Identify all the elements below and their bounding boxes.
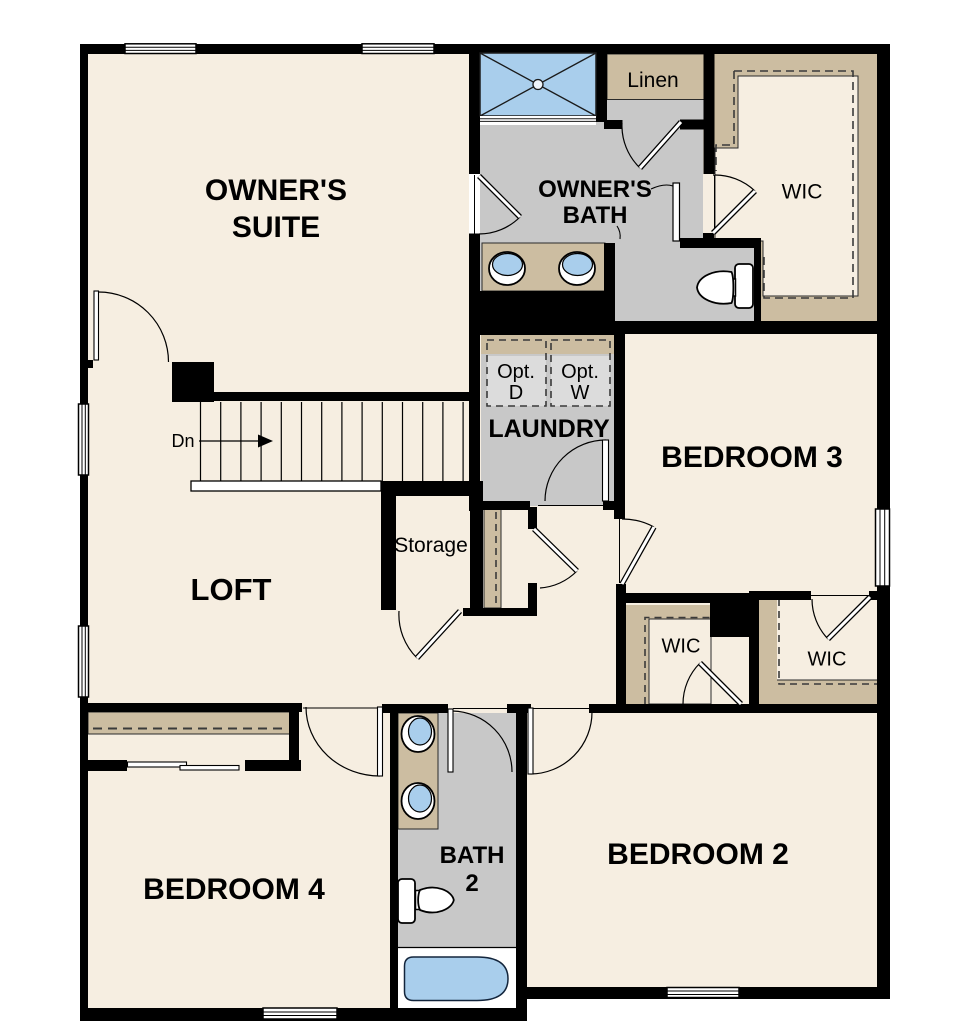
svg-text:Linen: Linen xyxy=(627,69,678,92)
svg-text:WIC: WIC xyxy=(662,636,701,658)
svg-text:Dn: Dn xyxy=(171,431,194,451)
svg-text:OWNER'S: OWNER'S xyxy=(205,174,347,207)
svg-text:Storage: Storage xyxy=(394,534,468,557)
svg-text:WIC: WIC xyxy=(808,649,847,671)
svg-text:W: W xyxy=(571,382,590,404)
svg-text:Opt.: Opt. xyxy=(561,361,599,383)
svg-text:OWNER'S: OWNER'S xyxy=(538,176,652,203)
svg-text:Opt.: Opt. xyxy=(497,361,535,383)
svg-text:BATH: BATH xyxy=(563,202,628,229)
svg-text:BEDROOM 2: BEDROOM 2 xyxy=(607,838,789,871)
svg-text:SUITE: SUITE xyxy=(232,211,320,244)
svg-text:WIC: WIC xyxy=(782,181,823,204)
svg-text:LOFT: LOFT xyxy=(191,572,272,607)
svg-text:D: D xyxy=(509,382,523,404)
svg-text:BEDROOM 4: BEDROOM 4 xyxy=(143,873,325,906)
svg-text:LAUNDRY: LAUNDRY xyxy=(488,415,610,443)
svg-text:BATH: BATH xyxy=(440,842,505,869)
svg-text:BEDROOM 3: BEDROOM 3 xyxy=(661,441,843,474)
svg-text:2: 2 xyxy=(465,870,478,897)
